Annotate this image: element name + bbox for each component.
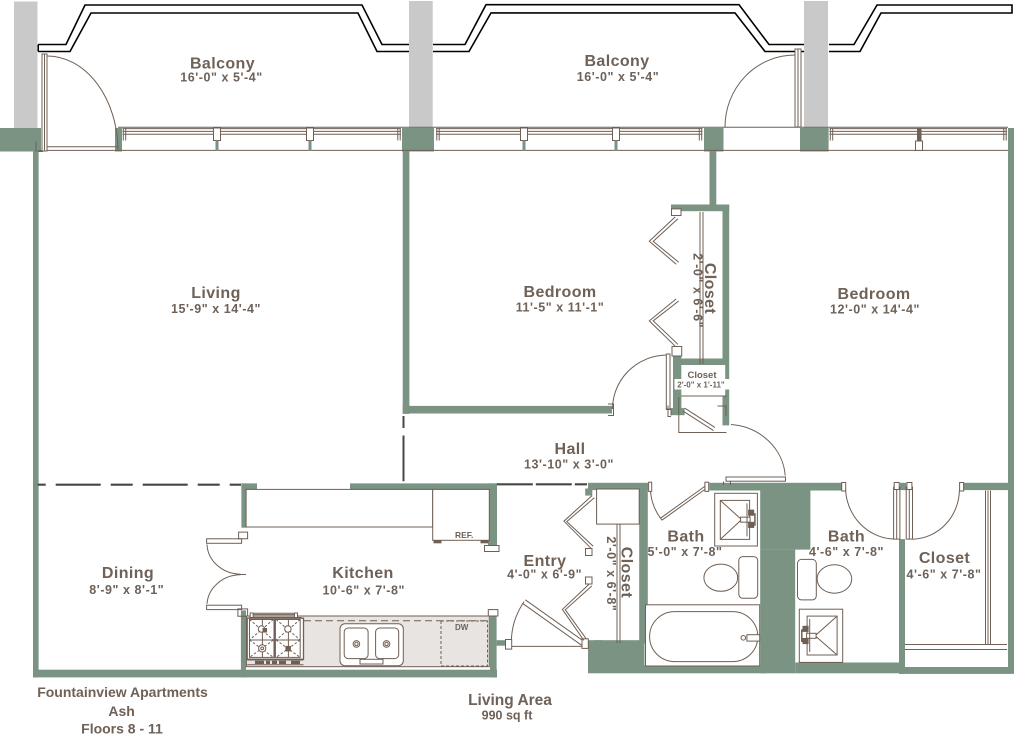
svg-text:Closet: Closet — [687, 370, 717, 381]
svg-text:Floors 8 - 11: Floors 8 - 11 — [81, 721, 163, 737]
svg-text:15'-9" x 14'-4": 15'-9" x 14'-4" — [171, 302, 261, 316]
svg-text:Bath: Bath — [828, 529, 865, 546]
svg-text:12'-0" x 14'-4": 12'-0" x 14'-4" — [830, 303, 920, 317]
svg-text:Bedroom: Bedroom — [837, 286, 910, 303]
svg-text:Ash: Ash — [108, 703, 134, 719]
svg-text:Hall: Hall — [555, 441, 586, 458]
svg-text:Bedroom: Bedroom — [523, 284, 596, 301]
svg-text:4'-0" x 6'-9": 4'-0" x 6'-9" — [507, 568, 582, 582]
svg-text:Kitchen: Kitchen — [332, 565, 393, 582]
svg-text:DW: DW — [455, 623, 469, 632]
svg-text:REF.: REF. — [455, 530, 473, 540]
svg-text:13'-10" x 3'-0": 13'-10" x 3'-0" — [524, 458, 614, 472]
svg-text:2'-0" x 1'-11": 2'-0" x 1'-11" — [677, 381, 725, 390]
svg-text:Closet: Closet — [919, 550, 971, 567]
svg-text:8'-9" x 8'-1": 8'-9" x 8'-1" — [89, 583, 164, 597]
svg-text:Fountainview Apartments: Fountainview Apartments — [37, 684, 208, 700]
svg-text:Dining: Dining — [102, 565, 154, 582]
svg-text:5'-0" x 7'-8": 5'-0" x 7'-8" — [648, 545, 723, 559]
svg-text:2'-0" x 6'-6": 2'-0" x 6'-6" — [690, 253, 704, 328]
svg-text:2'-0" x 6'-8": 2'-0" x 6'-8" — [604, 536, 618, 611]
svg-text:Balcony: Balcony — [584, 53, 649, 70]
svg-text:4'-6" x 7'-8": 4'-6" x 7'-8" — [907, 568, 982, 582]
svg-text:Living Area: Living Area — [468, 692, 552, 709]
svg-text:Bath: Bath — [667, 529, 704, 546]
svg-text:10'-6" x 7'-8": 10'-6" x 7'-8" — [322, 584, 404, 598]
svg-text:16'-0" x 5'-4": 16'-0" x 5'-4" — [180, 71, 262, 85]
svg-text:990 sq ft: 990 sq ft — [482, 709, 534, 723]
svg-text:Closet: Closet — [618, 547, 635, 599]
svg-text:11'-5" x 11'-1": 11'-5" x 11'-1" — [516, 301, 605, 315]
svg-text:4'-6" x 7'-8": 4'-6" x 7'-8" — [809, 545, 884, 559]
svg-text:Living: Living — [191, 285, 241, 302]
svg-text:16'-0" x 5'-4": 16'-0" x 5'-4" — [577, 70, 659, 84]
